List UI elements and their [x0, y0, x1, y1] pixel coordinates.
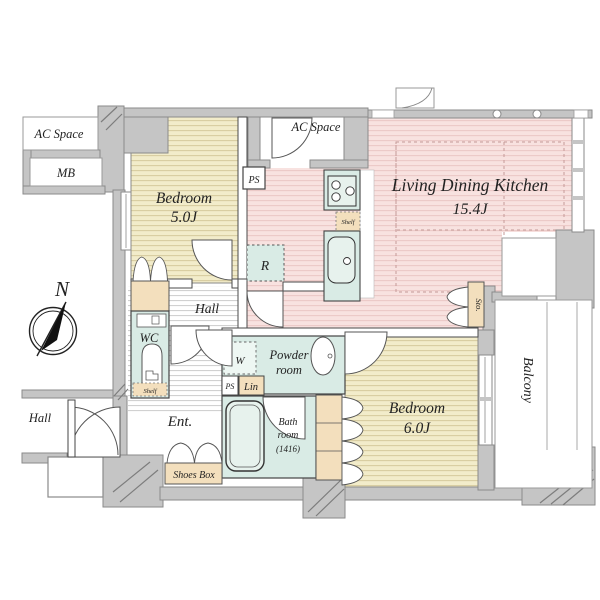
area-label-ldk: 15.4J — [452, 201, 488, 218]
wall-sw-block — [103, 455, 163, 507]
room-label-powder1: Powder — [269, 348, 309, 362]
fixture-label-ps-lower: PS — [225, 382, 235, 391]
wall-top-left — [124, 108, 368, 117]
wall-acspace-bottom-r — [310, 160, 368, 168]
shaft-box — [48, 457, 103, 497]
entrance-door-leaf — [68, 400, 75, 457]
wall-mb-bottom — [23, 186, 105, 194]
bedroom6-closet — [316, 395, 342, 480]
ldk-window-tick2 — [572, 168, 584, 172]
stove-burner3 — [346, 187, 354, 195]
wall-kitchen-south — [283, 282, 328, 291]
fixture-label-refrigerator: R — [260, 258, 270, 273]
wall-commonhall-top — [22, 390, 113, 398]
bathtub — [226, 401, 264, 471]
room-label-bedroom6: Bedroom — [389, 400, 445, 417]
room-label-powder2: room — [276, 363, 302, 377]
balcony-area — [495, 300, 592, 488]
room-label-common-hall: Hall — [28, 411, 52, 425]
ldk-north-window1 — [372, 110, 394, 118]
bedroom5-closet — [131, 281, 169, 311]
room-label-ac-space-left: AC Space — [34, 127, 84, 141]
wall-bedroom6-e-lower — [478, 445, 494, 490]
compass-north-label: N — [54, 277, 70, 301]
sink-basin — [328, 237, 355, 283]
wall-acbox-bottom — [23, 150, 100, 158]
room-label-ldk: Living Dining Kitchen — [391, 175, 549, 195]
room-label-mb: MB — [56, 166, 75, 180]
fixture-label-wc-shelf: Shelf — [144, 388, 158, 395]
wall-bedroom6-e-upper — [478, 330, 494, 355]
room-label-bath2: room — [278, 430, 299, 441]
ldk-east-window — [572, 118, 584, 232]
area-label-bedroom5: 5.0J — [171, 209, 198, 226]
room-label-ac-space-top: AC Space — [291, 120, 341, 134]
wall-hall-east — [238, 279, 247, 330]
toilet-cistern — [137, 314, 166, 327]
wall-bedroom5-east — [238, 117, 247, 287]
room-label-balcony: Balcony — [520, 357, 535, 404]
service-void — [502, 238, 556, 296]
area-label-bedroom6: 6.0J — [404, 420, 431, 437]
room-label-hall: Hall — [194, 301, 219, 316]
ldk-window-tick3 — [572, 196, 584, 200]
room-label-bedroom5: Bedroom — [156, 190, 212, 207]
kitchen-counter-strip — [360, 170, 374, 298]
fixture-label-washer: W — [235, 355, 245, 367]
stove-burner1 — [332, 181, 340, 189]
floor-plan-page: N AC Space MB Bedroom 5.0J AC Space PS L… — [0, 0, 600, 600]
bedroom6-window-tick — [479, 397, 492, 401]
sink-faucet — [344, 258, 351, 265]
ldk-north-window2 — [574, 110, 588, 118]
wall-bedroom5-pocket — [124, 117, 168, 153]
fixture-label-linen: Lin — [243, 382, 258, 393]
ldk-window-tick1 — [572, 140, 584, 144]
north-wall-vent2 — [533, 110, 541, 118]
room-label-ps-top: PS — [247, 175, 259, 186]
room-label-entrance: Ent. — [167, 414, 193, 430]
wall-top-right — [368, 110, 592, 118]
room-label-bath3: (1416) — [276, 444, 300, 454]
north-wall-vent1 — [493, 110, 501, 118]
stove-burner2 — [332, 193, 340, 201]
toilet-cistern-lid — [152, 316, 159, 324]
floor-plan-drawing: N AC Space MB Bedroom 5.0J AC Space PS L… — [0, 0, 600, 600]
room-label-bath1: Bath — [279, 417, 298, 428]
fixture-label-shoes-box: Shoes Box — [173, 470, 215, 481]
fixture-label-kitchen-shelf: Shelf — [342, 219, 356, 226]
wall-east-block — [556, 230, 594, 308]
washbasin — [311, 337, 335, 375]
room-label-wc: WC — [140, 331, 159, 345]
room-label-storage: Sto. — [474, 299, 484, 312]
